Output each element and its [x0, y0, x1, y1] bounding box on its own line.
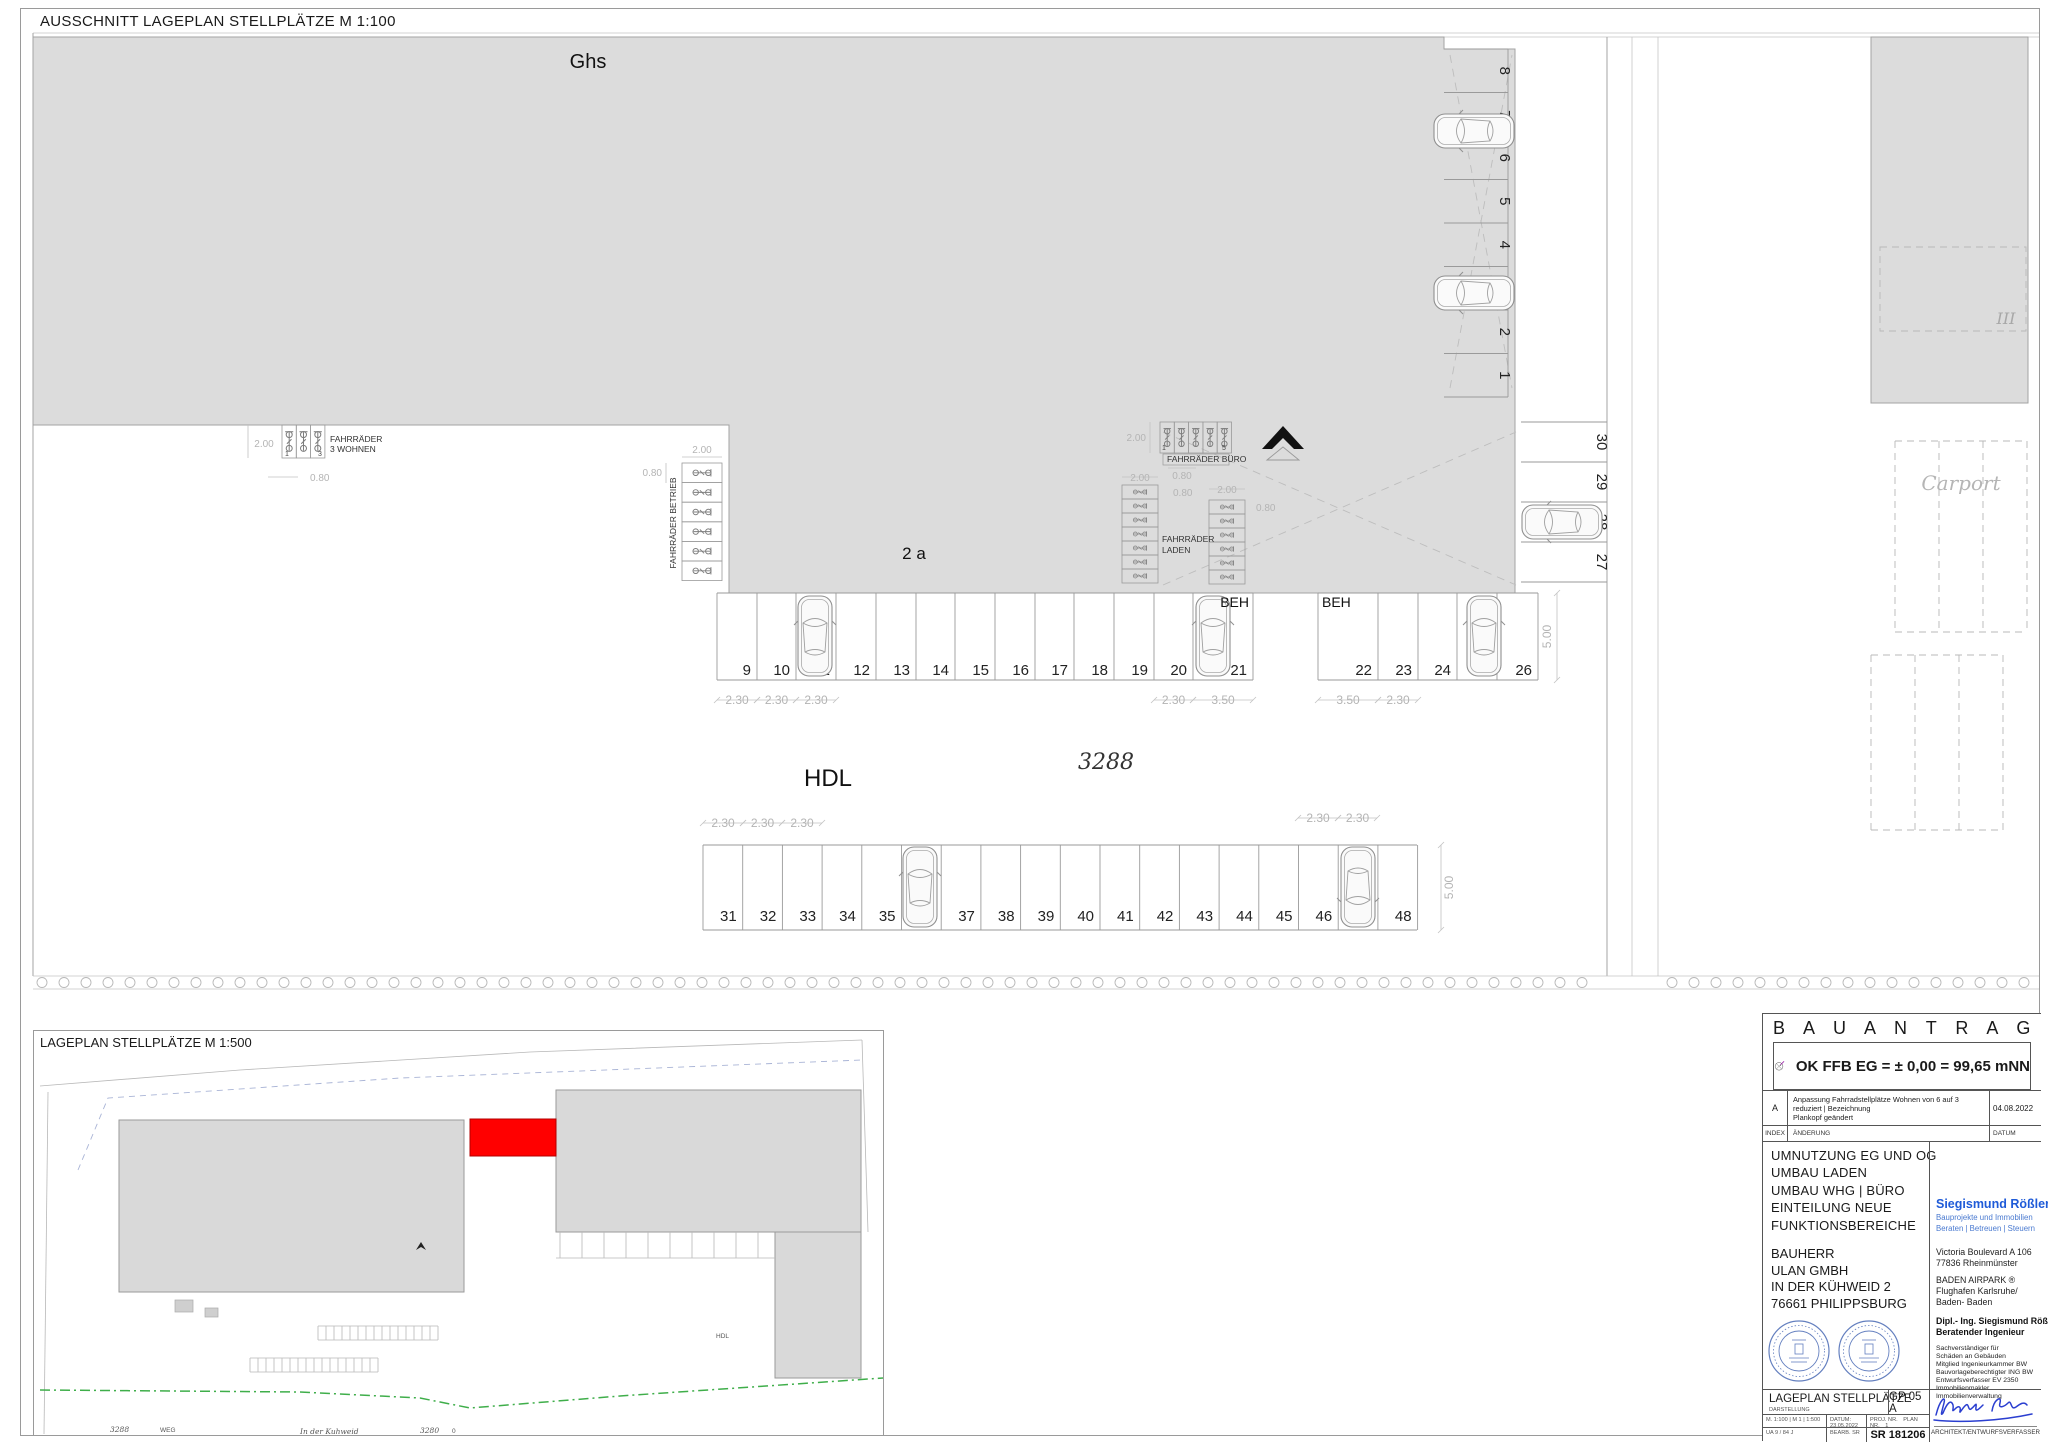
revision-row: A Anpassung Fahrradstellplätze Wohnen vo… — [1763, 1090, 2041, 1126]
footer-row-meta1: M. 1:100 | M 1 | 1:500 DATUM: 23.05.2022… — [1763, 1415, 1929, 1428]
project-description: UMNUTZUNG EG UND OG UMBAU LADEN UMBAU WH… — [1771, 1147, 1937, 1234]
client-line: ULAN GMBH — [1771, 1263, 1907, 1280]
revision-date: 04.08.2022 — [1989, 1091, 2041, 1125]
engineer-name: Dipl.- Ing. Siegismund Rößler — [1936, 1316, 2048, 1326]
client-line: IN DER KÜHWEID 2 — [1771, 1279, 1907, 1296]
architect-label: ARCHITEKT/ENTWURFSVERFASSER — [1930, 1429, 2041, 1436]
revision-index: A — [1763, 1091, 1788, 1125]
plan-index: 1 — [1885, 1423, 1888, 1427]
col-date-label: DATUM — [1989, 1126, 2041, 1141]
client-block: BAUHERR ULAN GMBH IN DER KÜHWEID 2 76661… — [1771, 1246, 1907, 1312]
level-note-box: OK FFB EG = ± 0,00 = 99,65 mNN — [1773, 1042, 2031, 1090]
main-plan-title: AUSSCHNITT LAGEPLAN STELLPLÄTZE M 1:100 — [40, 13, 396, 30]
firm-address: Flughafen Karlsruhe/ — [1936, 1286, 2018, 1296]
mini-small-building — [205, 1308, 218, 1317]
qualification: Bauvorlageberechtigter ING BW — [1936, 1369, 2033, 1376]
col-index-label: INDEX — [1763, 1126, 1788, 1141]
client-line: 76661 PHILIPPSBURG — [1771, 1296, 1907, 1313]
project-number: SR 181206 — [1866, 1428, 1929, 1442]
firm-column: Siegismund Rößler® Bauprojekte und Immob… — [1929, 1142, 2041, 1389]
scale-text: M. 1:100 | M 1 | 1:500 — [1763, 1415, 1826, 1427]
qualification: Entwurfsverfasser EV 2350 — [1936, 1377, 2018, 1384]
firm-address: Victoria Boulevard A 106 — [1936, 1247, 2032, 1257]
survey-point-icon — [1774, 1046, 1786, 1086]
overview-site-plan: 3288 WEG In der Kuhweid 3280 0 HDL — [0, 0, 2048, 1443]
signature-cell: ARCHITEKT/ENTWURFSVERFASSER — [1929, 1390, 2041, 1442]
mini-building-east-wing — [775, 1232, 861, 1378]
mini-building-west — [119, 1120, 464, 1292]
firm-address: 77836 Rheinmünster — [1936, 1258, 2018, 1268]
footer-row-meta2: UA 9 / 84 J BEARB. SR SR 181206 — [1763, 1428, 1929, 1442]
mini-zero-label: 0 — [452, 1428, 456, 1435]
client-label: BAUHERR — [1771, 1246, 1907, 1263]
project-line: EINTEILUNG NEUE — [1771, 1199, 1937, 1216]
firm-name: Siegismund Rößler® — [1936, 1197, 2048, 1211]
title-block: B A U A N T R A G OK FFB EG = ± 0,00 = 9… — [1762, 1013, 2041, 1441]
mini-highlight-building — [470, 1119, 556, 1156]
project-line: UMBAU WHG | BÜRO — [1771, 1182, 1937, 1199]
firm-tagline-1: Bauprojekte und Immobilien — [1936, 1213, 2033, 1222]
mini-plan-title: LAGEPLAN STELLPLÄTZE M 1:500 — [40, 1035, 252, 1050]
project-column: UMNUTZUNG EG UND OG UMBAU LADEN UMBAU WH… — [1763, 1142, 1929, 1389]
bauantrag-header: B A U A N T R A G — [1773, 1018, 2037, 1039]
level-note: OK FFB EG = ± 0,00 = 99,65 mNN — [1796, 1058, 2030, 1075]
footer-left: LAGEPLAN STELLPLÄTZE DARSTELLUNG GP 05 A… — [1763, 1390, 1929, 1442]
footer-grid: LAGEPLAN STELLPLÄTZE DARSTELLUNG GP 05 A… — [1763, 1389, 2041, 1441]
bearb-text: BEARB. SR — [1826, 1428, 1866, 1442]
mini-parcel-1: 3288 — [110, 1425, 129, 1434]
engineer-title: Beratender Ingenieur — [1936, 1327, 2024, 1337]
mini-hdl-label: HDL — [716, 1333, 729, 1340]
mini-parcel-2: 3280 — [420, 1426, 439, 1435]
qualification: Mitglied Ingenieurkammer BW — [1936, 1361, 2027, 1368]
revision-text-line1: Anpassung Fahrradstellplätze Wohnen von … — [1793, 1095, 1985, 1113]
sheet-text: UA 9 / 84 J — [1763, 1428, 1826, 1442]
footer-row-title: LAGEPLAN STELLPLÄTZE DARSTELLUNG GP 05 A — [1763, 1390, 1929, 1415]
mini-building-east — [556, 1090, 861, 1232]
mini-street-label: In der Kuhweid — [299, 1427, 359, 1436]
qualification: Schäden an Gebäuden — [1936, 1353, 2006, 1360]
project-line: FUNKTIONSBEREICHE — [1771, 1217, 1937, 1234]
datum-text: DATUM: 23.05.2022 — [1826, 1415, 1866, 1427]
firm-tagline-2: Beraten | Betreuen | Steuern — [1936, 1224, 2035, 1233]
firm-address: Baden- Baden — [1936, 1297, 1992, 1307]
revision-header-row: INDEX ÄNDERUNG DATUM — [1763, 1126, 2041, 1142]
engineer-stamps — [1765, 1318, 1915, 1384]
firm-address: BADEN AIRPARK ® — [1936, 1275, 2015, 1285]
col-change-label: ÄNDERUNG — [1788, 1126, 1989, 1141]
firm-name-text: Siegismund Rößler — [1936, 1197, 2048, 1211]
proj-plan-labels: PROJ. NR. PLAN NR. 1 — [1866, 1415, 1929, 1427]
mini-weg-label: WEG — [160, 1427, 176, 1434]
mini-small-building — [175, 1300, 193, 1312]
qualification: Sachverständiger für — [1936, 1345, 1999, 1352]
revision-text: Anpassung Fahrradstellplätze Wohnen von … — [1788, 1091, 1989, 1125]
signature-icon — [1930, 1390, 2036, 1424]
project-line: UMNUTZUNG EG UND OG — [1771, 1147, 1937, 1164]
darstellung-label: DARSTELLUNG — [1769, 1407, 1810, 1413]
project-line: UMBAU LADEN — [1771, 1164, 1937, 1181]
revision-text-line2: Plankopf geändert — [1793, 1113, 1985, 1122]
signature-line — [1934, 1426, 2037, 1427]
plan-code: GP 05 A — [1888, 1390, 1929, 1415]
